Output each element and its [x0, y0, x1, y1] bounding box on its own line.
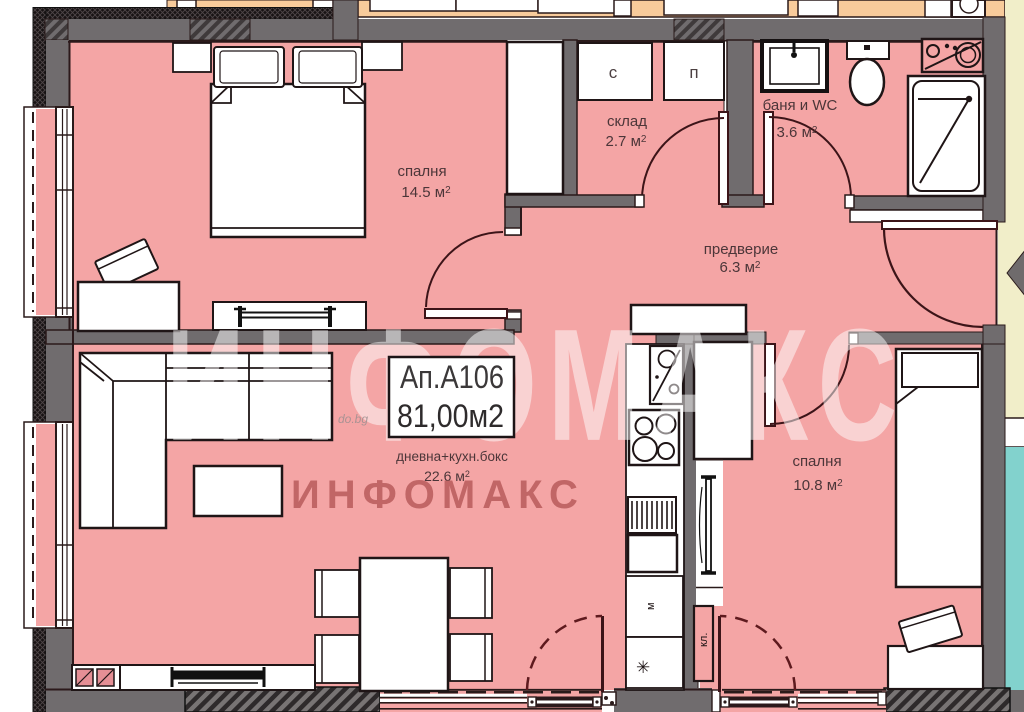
- svg-text:3.6 м2: 3.6 м2: [777, 124, 818, 141]
- svg-text:дневна+кухн.бокс: дневна+кухн.бокс: [396, 449, 508, 464]
- svg-text:Ап.А106: Ап.А106: [400, 359, 504, 395]
- svg-text:14.5 м2: 14.5 м2: [401, 184, 451, 201]
- svg-text:с: с: [609, 63, 618, 82]
- svg-text:do.bg: do.bg: [338, 412, 368, 426]
- svg-text:предверие: предверие: [704, 241, 778, 258]
- svg-text:склад: склад: [607, 113, 647, 130]
- svg-text:баня и WC: баня и WC: [763, 97, 838, 114]
- svg-text:2.7 м2: 2.7 м2: [606, 133, 647, 150]
- svg-text:кл.: кл.: [698, 633, 710, 647]
- svg-text:м: м: [645, 602, 657, 610]
- svg-text:п: п: [689, 63, 698, 82]
- svg-text:ИНФОМАКС: ИНФОМАКС: [291, 473, 585, 517]
- svg-text:6.3 м2: 6.3 м2: [720, 259, 761, 276]
- svg-text:10.8 м2: 10.8 м2: [793, 477, 843, 494]
- svg-text:81,00м2: 81,00м2: [397, 398, 504, 434]
- svg-text:ИНФОМАКС: ИНФОМАКС: [166, 297, 908, 475]
- svg-text:✳: ✳: [636, 658, 650, 677]
- svg-text:спалня: спалня: [397, 163, 446, 180]
